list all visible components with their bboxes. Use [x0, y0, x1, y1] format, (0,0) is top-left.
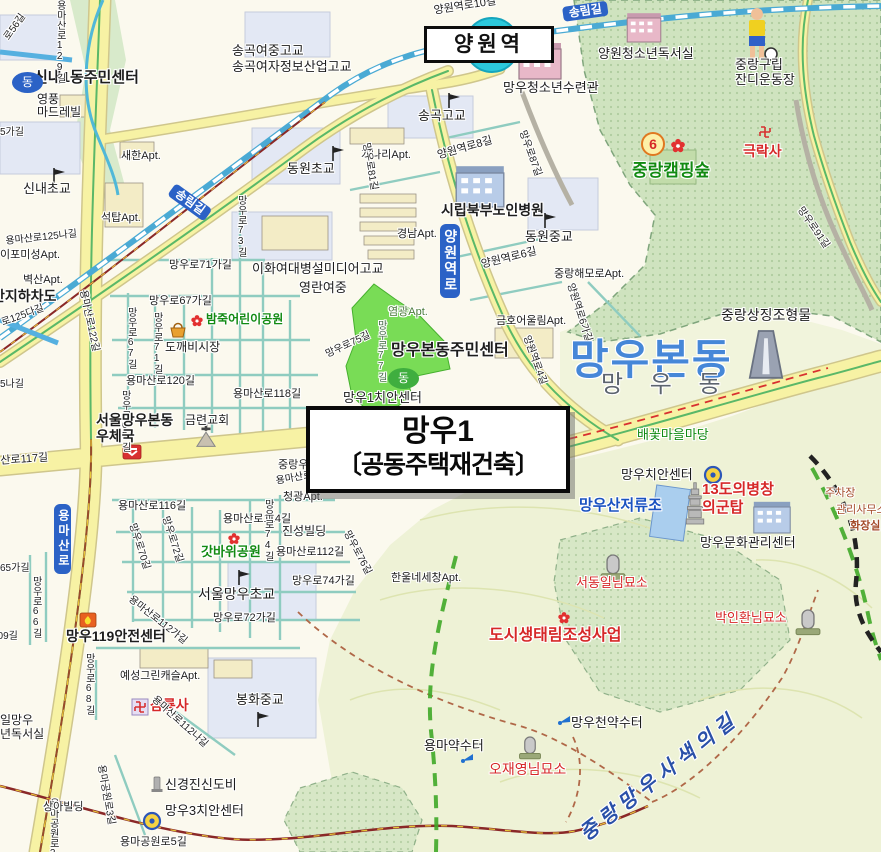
redevelopment-callout: 망우1 〔공동주택재건축〕	[306, 406, 570, 493]
redevelopment-zone	[346, 284, 450, 409]
callout-title: 망우1	[310, 415, 566, 449]
police-icon	[705, 467, 721, 483]
police-icon	[144, 813, 160, 829]
map-canvas[interactable]: 양원역로10길송림길송곡여중고교송곡여자정보산업고교신내1동주민센터동영풍 마드…	[0, 0, 881, 852]
building-icon	[627, 13, 661, 42]
park-flower-icon	[191, 315, 202, 326]
post-office-icon	[123, 445, 141, 459]
forest-area	[568, 0, 881, 342]
park-flower-icon	[228, 533, 239, 544]
callout-subtitle: 〔공동주택재건축〕	[310, 449, 566, 481]
fire-station-icon	[80, 613, 96, 627]
building-icon	[456, 166, 504, 207]
building-icon	[754, 502, 790, 533]
reservoir-rect	[650, 485, 691, 541]
station-badge: 양원역	[424, 26, 554, 63]
stone-monument-icon	[152, 777, 163, 792]
lawn-field-pitch	[650, 150, 696, 184]
